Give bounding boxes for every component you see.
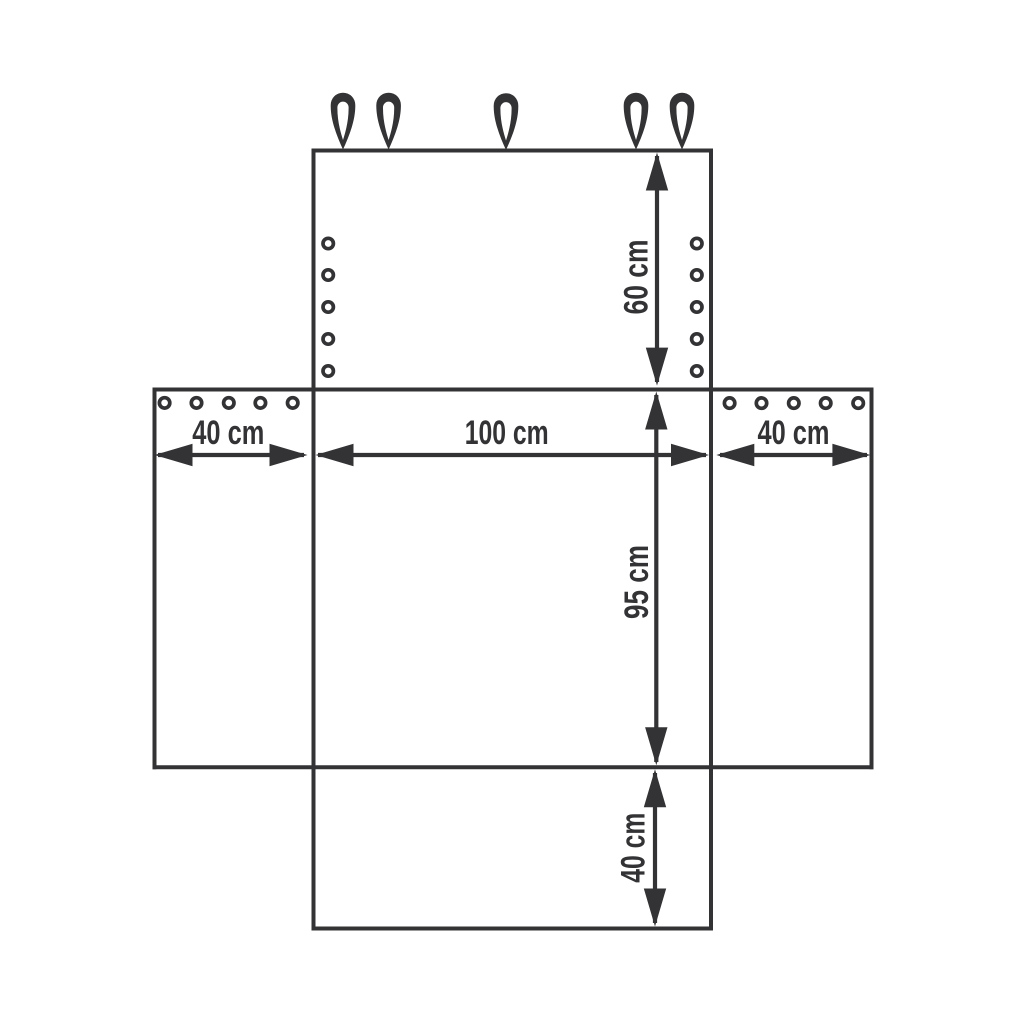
svg-text:100 cm: 100 cm — [465, 414, 549, 452]
svg-text:40 cm: 40 cm — [192, 414, 264, 452]
svg-text:40 cm: 40 cm — [615, 813, 653, 883]
svg-text:95 cm: 95 cm — [618, 545, 656, 619]
svg-text:40 cm: 40 cm — [758, 414, 830, 452]
svg-text:60 cm: 60 cm — [618, 240, 656, 315]
